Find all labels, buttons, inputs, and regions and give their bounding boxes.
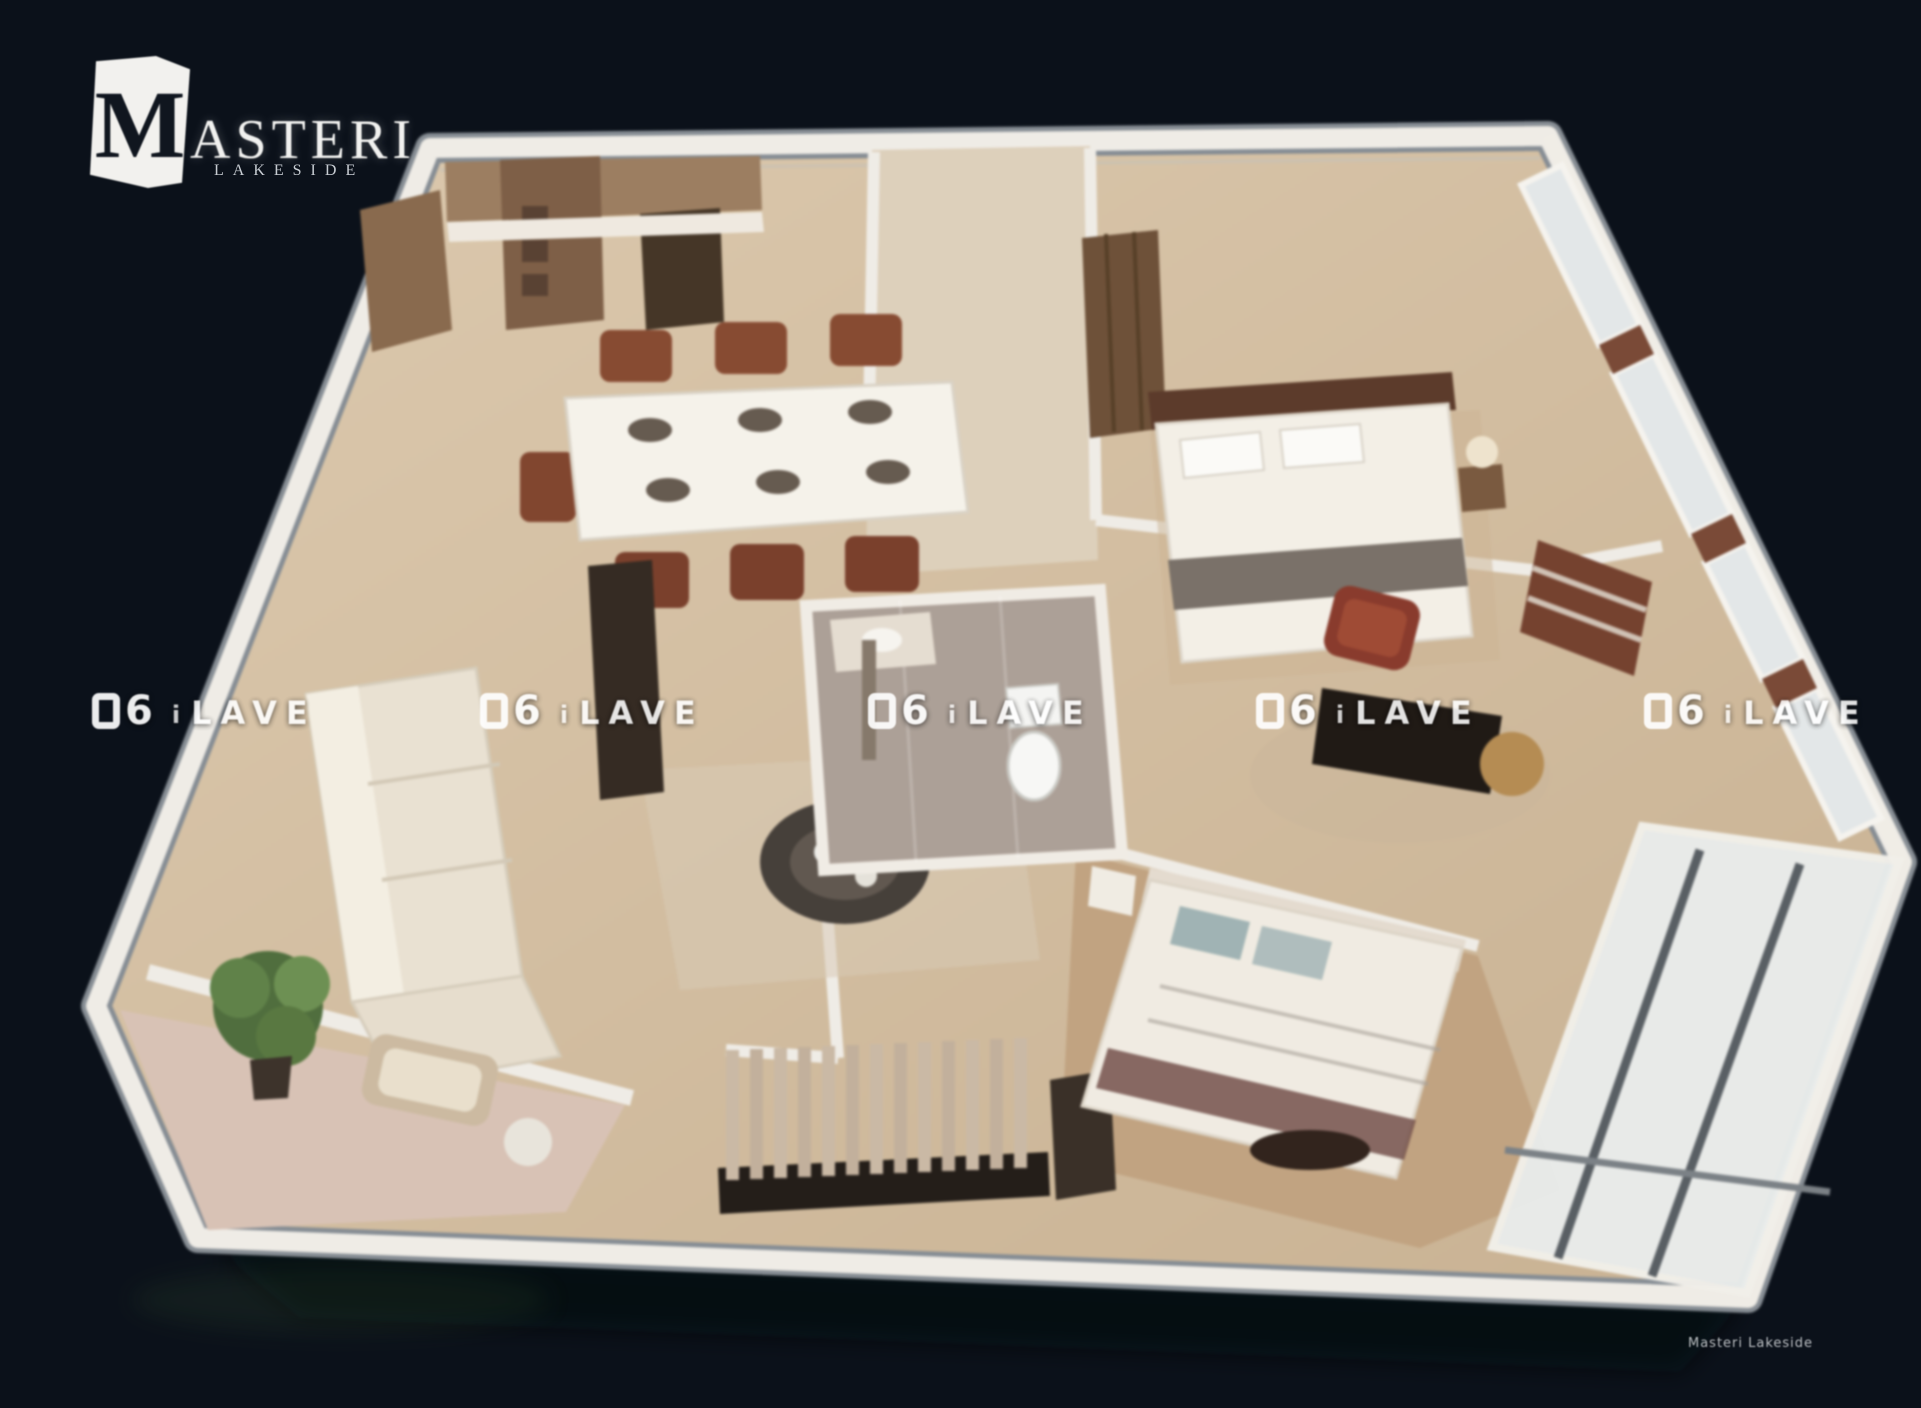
watermark-square-icon [1256, 693, 1284, 729]
emblem-initial: M [84, 46, 196, 194]
bed-master [1156, 404, 1472, 662]
brand-subtitle: LAKESIDE [214, 162, 364, 180]
watermark-tile: 6 i LAVE [92, 688, 317, 734]
watermark-digit: 6 [1289, 688, 1317, 734]
foot-bench [1250, 1130, 1370, 1170]
table-lamp [1466, 436, 1498, 468]
watermark-square-icon [480, 693, 508, 729]
watermark-tile: 6 i LAVE [868, 688, 1093, 734]
watermark-digit: 6 [1677, 688, 1705, 734]
watermark-word: LAVE [1355, 694, 1481, 732]
watermark-mid: i [948, 701, 956, 729]
watermark-tile: 6 i LAVE [480, 688, 705, 734]
masteri-emblem-icon: M [84, 46, 196, 194]
watermark-tile: 6 i LAVE [1644, 688, 1869, 734]
nightstand [1458, 464, 1506, 512]
watermark-word: LAVE [1743, 694, 1869, 732]
ottoman [1480, 732, 1544, 796]
balcony-side-table [504, 1118, 552, 1166]
watermark-square-icon [868, 693, 896, 729]
watermark-mid: i [1336, 701, 1344, 729]
watermark-tile: 6 i LAVE [1256, 688, 1481, 734]
watermark-square-icon [92, 693, 120, 729]
watermark-mid: i [1724, 701, 1732, 729]
watermark-mid: i [172, 701, 180, 729]
watermark-mid: i [560, 701, 568, 729]
watermark-word: LAVE [967, 694, 1093, 732]
page: { "logo": { "initial": "M", "wordmark": … [0, 0, 1921, 1408]
brand-wordmark: ASTERI [190, 112, 416, 168]
watermark-square-icon [1644, 693, 1672, 729]
watermark-digit: 6 [901, 688, 929, 734]
credit-watermark: Masteri Lakeside [1688, 1336, 1813, 1351]
watermark-digit: 6 [125, 688, 153, 734]
watermark-word: LAVE [579, 694, 705, 732]
tv-cabinet [588, 560, 664, 800]
watermark-word: LAVE [191, 694, 317, 732]
watermark-digit: 6 [513, 688, 541, 734]
